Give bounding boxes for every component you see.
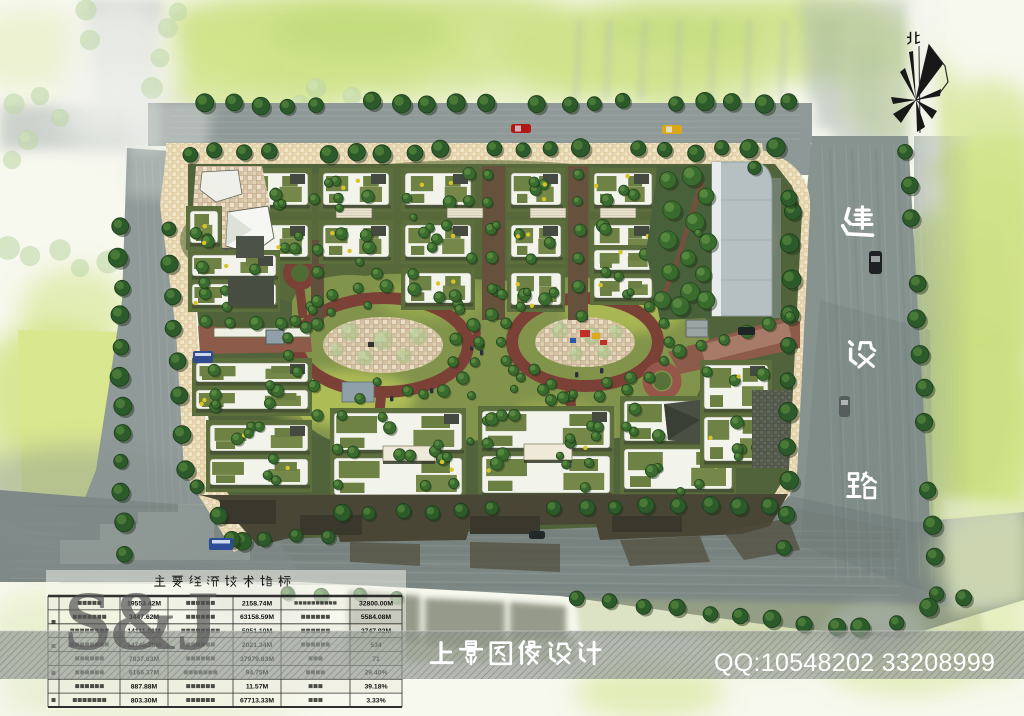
svg-text:32800.00M: 32800.00M [359, 600, 393, 607]
svg-text:2158.74M: 2158.74M [242, 600, 273, 607]
svg-text:QQ:10548202 33208999: QQ:10548202 33208999 [714, 649, 995, 677]
svg-text:63158.59M: 63158.59M [240, 614, 274, 621]
svg-text:5584.08M: 5584.08M [361, 614, 392, 621]
svg-text:3.33%: 3.33% [366, 697, 385, 704]
svg-text:11.57M: 11.57M [246, 684, 269, 691]
svg-text:803.30M: 803.30M [131, 697, 158, 704]
svg-text:S&J: S&J [64, 574, 217, 668]
svg-text:887.88M: 887.88M [131, 684, 158, 691]
svg-text:67713.33M: 67713.33M [240, 697, 274, 704]
svg-text:39.18%: 39.18% [364, 684, 387, 691]
